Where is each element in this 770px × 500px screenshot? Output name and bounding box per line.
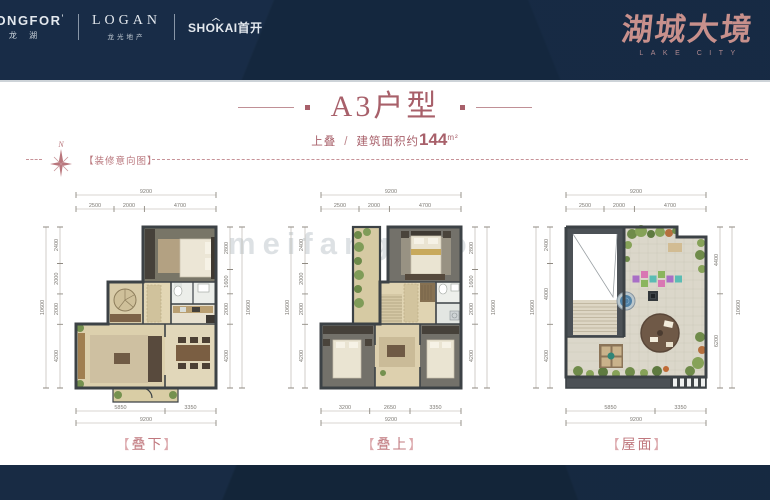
shokai-roof-icon: ︿ [212,12,221,23]
area-label: 建筑面积约 [357,136,420,148]
plant-icon [114,391,122,399]
svg-text:2000: 2000 [54,273,60,285]
bracket: 【 [606,437,621,452]
header-bar: LONGFOR’ 龙 湖 LOGAN 龙光地产 ︿ SHOKAI首开 湖城大境 … [0,0,770,82]
floorplan-lower-level: 9200 2500 2000 4700 5850 3350 9200 10600… [30,187,265,427]
svg-text:5850: 5850 [114,405,126,411]
project-brand: 湖城大境 LAKE CITY [622,4,754,57]
footer-bar [0,465,770,500]
caption-text: 叠上 [377,436,409,452]
logan-chinese: 龙光地产 [92,31,161,41]
floorplan-upper-level: 9200 2500 2000 4700 3200 2650 3350 9200 … [275,187,510,427]
unit-position-label: 上叠 [311,136,336,148]
page-title: A3户型 [331,90,440,124]
title-dot-icon [460,105,465,110]
svg-text:2000: 2000 [613,203,625,209]
caption-text: 叠下 [132,436,164,452]
shokai-name: SHOKAI [188,21,238,35]
svg-text:4200: 4200 [544,350,550,362]
svg-text:4200: 4200 [299,350,305,362]
bracket: 【 [116,437,131,452]
svg-text:3350: 3350 [674,405,686,411]
svg-text:2000: 2000 [368,203,380,209]
figure-lower-level: 9200 2500 2000 4700 5850 3350 9200 10600… [30,187,265,454]
sofa-icon [148,336,162,382]
coffee-table [114,353,130,364]
caption-lower-level: 【叠下】 [30,434,265,454]
svg-text:4400: 4400 [714,254,720,266]
svg-text:2500: 2500 [334,203,346,209]
study-table [387,345,405,357]
svg-text:2650: 2650 [384,405,396,411]
brochure-page: LONGFOR’ 龙 湖 LOGAN 龙光地产 ︿ SHOKAI首开 湖城大境 … [0,0,770,500]
svg-text:2000: 2000 [299,273,305,285]
svg-text:1600: 1600 [224,275,230,287]
svg-text:2800: 2800 [469,242,475,254]
plan3-roof-terrace [566,225,706,388]
shokai-chinese: 首开 [238,21,263,35]
svg-text:2400: 2400 [544,239,550,251]
svg-text:2000: 2000 [123,203,135,209]
sink-icon [198,284,209,292]
bracket: 【 [361,437,376,452]
toilet-icon [439,284,447,294]
balcony [113,388,178,402]
plant-icon [169,391,177,399]
toilet-icon [174,286,182,296]
tv-cabinet [78,333,85,379]
svg-text:3350: 3350 [429,405,441,411]
bracket: 】 [164,437,179,452]
svg-text:9200: 9200 [140,417,152,423]
longfor-mark-icon: ’ [62,15,65,22]
dining-table [176,345,210,361]
svg-text:4700: 4700 [664,203,676,209]
subtitle: 上叠/建筑面积约144m² [0,130,770,150]
compass-icon: N [46,138,76,180]
svg-text:5850: 5850 [604,405,616,411]
svg-text:3200: 3200 [339,405,351,411]
svg-text:4000: 4000 [544,288,550,300]
plan2-rooms [321,227,461,388]
title-rule-right [476,107,532,108]
svg-text:6200: 6200 [714,335,720,347]
svg-text:4200: 4200 [224,350,230,362]
svg-text:9200: 9200 [385,189,397,195]
svg-text:9200: 9200 [385,417,397,423]
svg-text:2000: 2000 [224,303,230,315]
svg-text:4700: 4700 [174,203,186,209]
svg-text:2800: 2800 [224,242,230,254]
svg-text:2500: 2500 [579,203,591,209]
svg-text:4700: 4700 [419,203,431,209]
title-rule-left [238,107,294,108]
svg-text:10600: 10600 [246,300,252,315]
logan-logo: LOGAN 龙光地产 [92,13,161,41]
svg-text:2000: 2000 [469,303,475,315]
svg-text:4200: 4200 [469,350,475,362]
title-row: A3户型 [0,90,770,124]
svg-text:4200: 4200 [54,350,60,362]
title-dot-icon [305,105,310,110]
svg-text:10600: 10600 [530,300,536,315]
washer-icon [450,311,459,320]
area-unit: m² [447,133,458,142]
svg-text:2400: 2400 [54,239,60,251]
svg-text:1600: 1600 [469,275,475,287]
svg-text:10600: 10600 [491,300,497,315]
svg-text:9200: 9200 [140,189,152,195]
longfor-logo: LONGFOR’ 龙 湖 [0,13,65,41]
cross-table-icon [599,344,623,368]
bracket: 】 [409,437,424,452]
brand-tagline: LAKE CITY [622,50,754,57]
figure-upper-level: 9200 2500 2000 4700 3200 2650 3350 9200 … [275,187,510,454]
subtitle-separator: / [344,136,348,148]
svg-text:9200: 9200 [630,189,642,195]
shokai-logo: ︿ SHOKAI首开 [188,19,263,36]
brand-name: 湖城大境 [620,4,757,49]
bracket: 】 [654,437,669,452]
plan1-rooms [76,227,216,402]
area-value: 144 [419,130,447,149]
dashed-rule-left [26,159,42,160]
logo-divider [174,14,175,40]
svg-text:N: N [57,140,64,149]
svg-text:2000: 2000 [299,303,305,315]
svg-text:10600: 10600 [736,300,742,315]
caption-upper-level: 【叠上】 [275,434,510,454]
caption-text: 屋面 [622,436,654,452]
plant-icon [380,370,386,376]
floorplan-roof: 9200 2500 2000 4700 5850 3350 9200 10600… [520,187,755,427]
svg-text:2400: 2400 [299,239,305,251]
svg-text:3350: 3350 [184,405,196,411]
dashed-rule-right [152,159,748,160]
svg-text:10600: 10600 [285,300,291,315]
figure-roof: 9200 2500 2000 4700 5850 3350 9200 10600… [520,187,755,454]
longfor-name: LONGFOR [0,13,62,28]
developer-logos: LONGFOR’ 龙 湖 LOGAN 龙光地产 ︿ SHOKAI首开 [0,13,263,41]
svg-text:10600: 10600 [40,300,46,315]
longfor-chinese: 龙 湖 [0,30,65,41]
floorplans-row: 9200 2500 2000 4700 5850 3350 9200 10600… [30,187,755,454]
logan-name: LOGAN [92,13,161,29]
parapet [566,377,670,388]
svg-text:9200: 9200 [630,417,642,423]
lounge-bench [668,243,682,252]
decoration-note: 【装修意向图】 [84,153,158,167]
svg-text:2500: 2500 [89,203,101,209]
plant-icon [354,231,362,239]
svg-text:2000: 2000 [54,303,60,315]
logo-divider [78,14,79,40]
caption-roof: 【屋面】 [520,434,755,454]
